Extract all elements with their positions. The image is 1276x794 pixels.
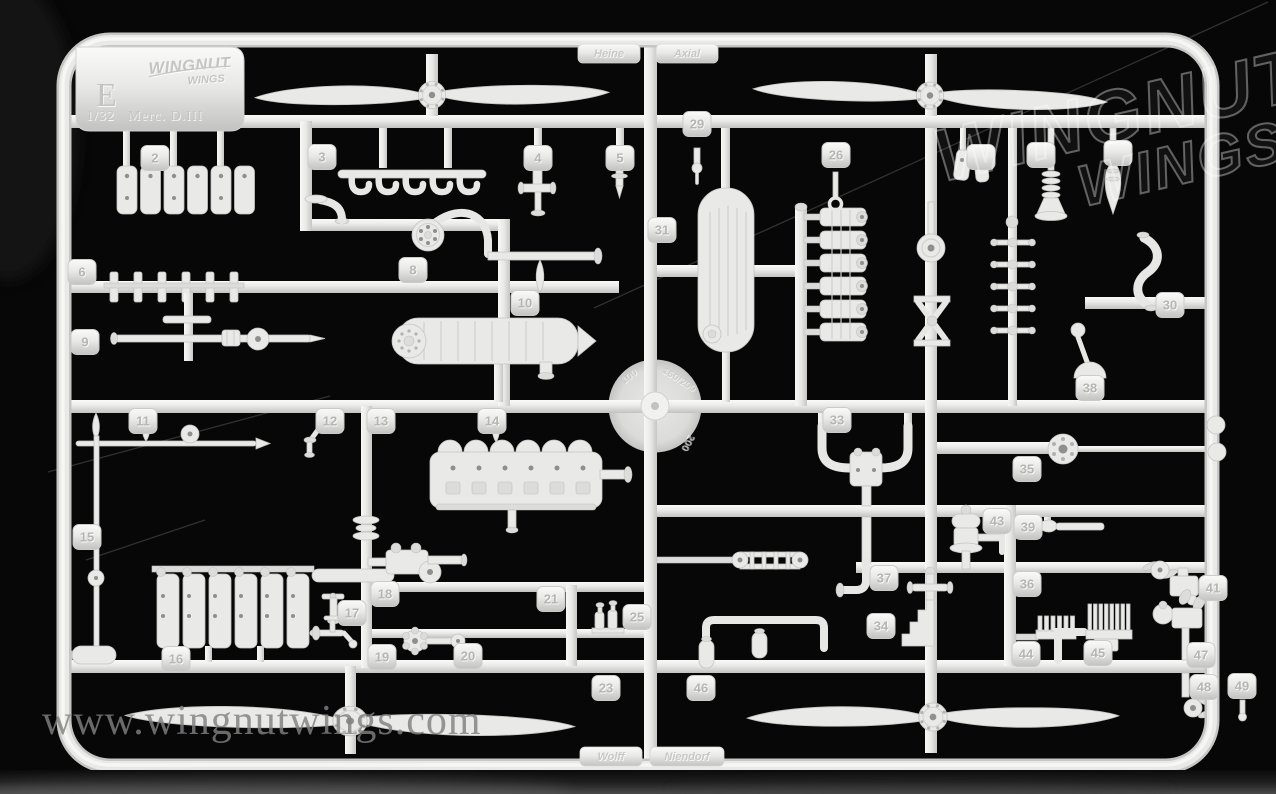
runner-v-tank-bottom (722, 352, 730, 402)
part-tag-8: 8 (399, 258, 427, 283)
sprue-label-tab: E WINGNUT WINGS 1/32 Merc. D.III (76, 47, 244, 131)
svg-text:12: 12 (323, 414, 337, 429)
part-tag-49: 49 (1228, 674, 1256, 699)
svg-text:37: 37 (877, 571, 891, 586)
part-tag-17: 17 (338, 601, 366, 626)
svg-text:47: 47 (1194, 648, 1208, 663)
plate-wolff-text: Wolff (597, 751, 625, 763)
svg-text:36: 36 (1020, 577, 1034, 592)
svg-text:33: 33 (830, 413, 844, 428)
plate-heine: Heine (578, 44, 640, 63)
part-tag-6: 6 (68, 260, 96, 285)
part-tag-13: 13 (367, 409, 395, 434)
svg-text:5: 5 (616, 151, 623, 166)
part-tag-37: 37 (870, 566, 898, 591)
part-tag-21: 21 (537, 587, 565, 612)
sprue-photo: 100 160/200 200 (0, 0, 1276, 794)
disc-center-boss (641, 392, 669, 420)
part-tag-20: 20 (454, 644, 482, 669)
svg-text:48: 48 (1197, 680, 1211, 695)
part-tag-48: 48 (1190, 675, 1218, 700)
part-tag-12: 12 (316, 409, 344, 434)
part-tag-15: 15 (73, 525, 101, 550)
part-tag-46: 46 (687, 676, 715, 701)
runner-v-topleft (300, 121, 312, 231)
svg-text:23: 23 (599, 681, 613, 696)
plate-heine-text: Heine (594, 48, 624, 60)
svg-text:9: 9 (81, 335, 88, 350)
part-tag-23: 23 (592, 676, 620, 701)
part-tag-11: 11 (129, 409, 157, 434)
part-tag-10: 10 (511, 291, 539, 316)
svg-text:8: 8 (409, 263, 416, 278)
part-tag-16: 16 (162, 647, 190, 672)
svg-text:38: 38 (1083, 381, 1097, 396)
plate-axial: Axial (656, 44, 718, 63)
washer-stack-part-13 (353, 516, 379, 540)
part-tag-31: 31 (648, 218, 676, 243)
svg-text:20: 20 (461, 649, 475, 664)
svg-text:10: 10 (518, 296, 532, 311)
runner-v-tank-top (721, 128, 730, 192)
svg-text:43: 43 (990, 514, 1004, 529)
plate-axial-text: Axial (673, 48, 701, 60)
runner-h-middle (71, 400, 1205, 413)
runner-rod-flange (1075, 446, 1206, 452)
watermark-url: www.wingnutwings.com (42, 698, 482, 744)
sprue-scale: 1/32 (86, 109, 115, 124)
svg-text:46: 46 (694, 681, 708, 696)
part-tag-2: 2 (141, 146, 169, 171)
svg-text:41: 41 (1206, 581, 1220, 596)
part-tag-29: 29 (683, 112, 711, 137)
part-tag-5: 5 (606, 146, 634, 171)
svg-text:11: 11 (136, 414, 150, 429)
plate-niendorf-text: Niendorf (664, 751, 711, 763)
svg-text:19: 19 (375, 650, 389, 665)
svg-text:18: 18 (378, 587, 392, 602)
svg-text:16: 16 (169, 652, 183, 667)
part-tag-43: 43 (983, 509, 1011, 534)
svg-text:31: 31 (655, 223, 669, 238)
part-tag-14: 14 (478, 409, 506, 434)
svg-text:29: 29 (690, 117, 704, 132)
svg-text:30: 30 (1163, 298, 1177, 313)
svg-text:2: 2 (151, 151, 158, 166)
part-tag-19: 19 (368, 645, 396, 670)
runner-v-bottles (566, 585, 577, 666)
part-tag-26: 26 (822, 143, 850, 168)
svg-text:44: 44 (1019, 647, 1034, 662)
svg-text:17: 17 (345, 606, 359, 621)
part-tag-9: 9 (71, 330, 99, 355)
mount-flange-part-35 (1048, 434, 1078, 464)
svg-text:49: 49 (1235, 679, 1249, 694)
part-tag-33: 33 (823, 408, 851, 433)
frame-gate-bump (1208, 443, 1226, 461)
svg-text:25: 25 (630, 610, 644, 625)
part-tag-4: 4 (524, 146, 552, 171)
svg-text:26: 26 (829, 148, 843, 163)
oil-tank-part-31 (698, 188, 754, 352)
part-tag-35: 35 (1013, 457, 1041, 482)
frame-gate-bump (1207, 416, 1225, 434)
plate-niendorf: Niendorf (650, 747, 724, 766)
pin-part-49 (1239, 700, 1247, 721)
svg-text:35: 35 (1020, 462, 1034, 477)
part-tag-38: 38 (1076, 376, 1104, 401)
part-tag-36: 36 (1013, 572, 1041, 597)
part-tag-39: 39 (1014, 515, 1042, 540)
svg-text:14: 14 (485, 414, 500, 429)
part-tag-34: 34 (867, 614, 895, 639)
svg-text:21: 21 (544, 592, 558, 607)
sprue-subject: Merc. D.III (128, 109, 203, 124)
plate-wolff: Wolff (580, 747, 642, 766)
svg-text:39: 39 (1021, 520, 1035, 535)
svg-text:6: 6 (78, 265, 85, 280)
svg-text:34: 34 (874, 619, 889, 634)
svg-text:4: 4 (534, 151, 542, 166)
runner-h-left-low (361, 582, 644, 592)
part-tag-44: 44 (1012, 642, 1040, 667)
svg-text:45: 45 (1091, 646, 1105, 661)
svg-text:13: 13 (374, 414, 388, 429)
part-tag-30: 30 (1156, 293, 1184, 318)
svg-text:15: 15 (80, 530, 94, 545)
part-tag-18: 18 (371, 582, 399, 607)
part-tag-47: 47 (1187, 643, 1215, 668)
part-tag-45: 45 (1084, 641, 1112, 666)
sprue-photo-canvas: 100 160/200 200 (0, 0, 1276, 794)
part-tag-41: 41 (1199, 576, 1227, 601)
part-tag-25: 25 (623, 605, 651, 630)
svg-text:3: 3 (318, 150, 325, 165)
part-tag-3: 3 (308, 145, 336, 170)
